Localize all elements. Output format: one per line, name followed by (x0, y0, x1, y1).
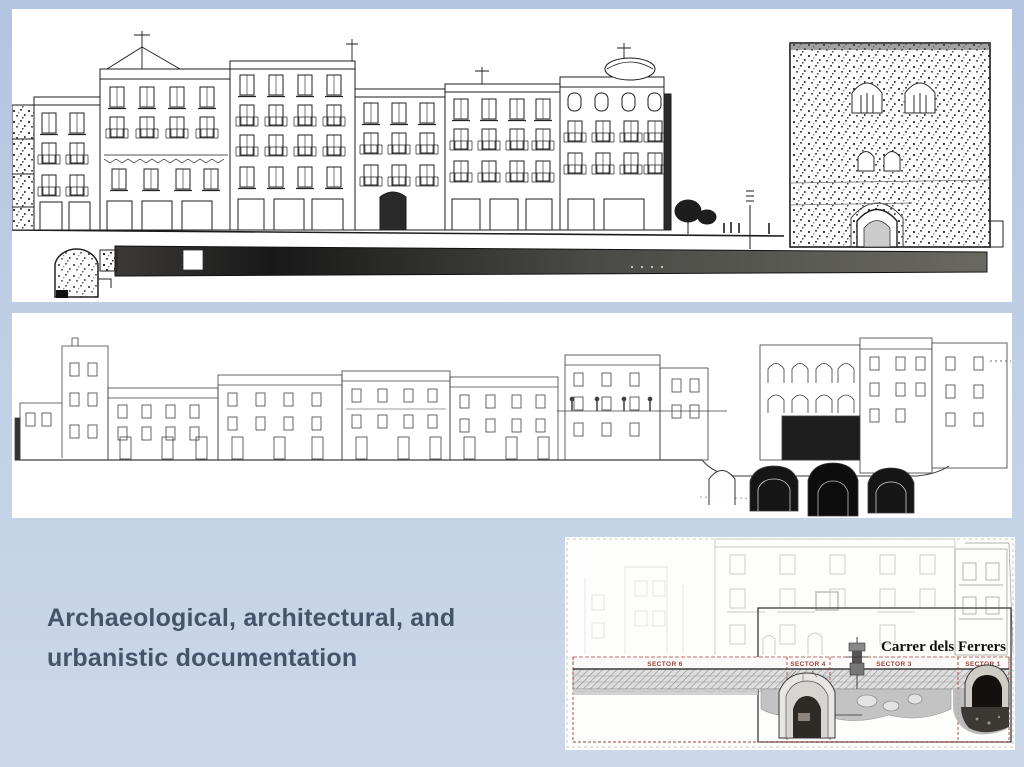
upper-elevation-panel (12, 9, 1012, 302)
street-name-label: Carrer dels Ferrers (881, 639, 1006, 655)
street-sketch-right (565, 338, 1011, 516)
slide-title: Archaeological, architectural, and urban… (47, 598, 487, 678)
trees-and-people (675, 191, 769, 249)
faint-facade-sketch (585, 539, 1013, 655)
street-sketch-left (15, 338, 727, 460)
sector-3-label: SECTOR 3 (876, 661, 912, 668)
excavation-section-drawing: Carrer dels Ferrers SECTOR 6 SECTOR 4 (565, 537, 1015, 750)
slide-title-line1: Archaeological, architectural, and (47, 598, 487, 638)
sector-4-label: SECTOR 4 (790, 661, 826, 668)
sector-6-label: SECTOR 6 (647, 661, 683, 668)
excavation-section-panel: Carrer dels Ferrers SECTOR 6 SECTOR 4 (565, 537, 1015, 750)
slide-background: Archaeological, architectural, and urban… (0, 0, 1024, 767)
sector4-vault (779, 671, 835, 738)
upper-street-elevation-drawing (12, 9, 1012, 302)
lower-street-elevation-drawing (12, 313, 1012, 518)
buried-vaults (709, 463, 914, 516)
street-facades (12, 31, 784, 236)
slide-title-line2: urbanistic documentation (47, 638, 487, 678)
sector1-vault (961, 665, 1009, 732)
pretori-tower (790, 43, 1003, 247)
lower-elevation-panel (12, 313, 1012, 518)
city-wall-section (55, 246, 987, 298)
